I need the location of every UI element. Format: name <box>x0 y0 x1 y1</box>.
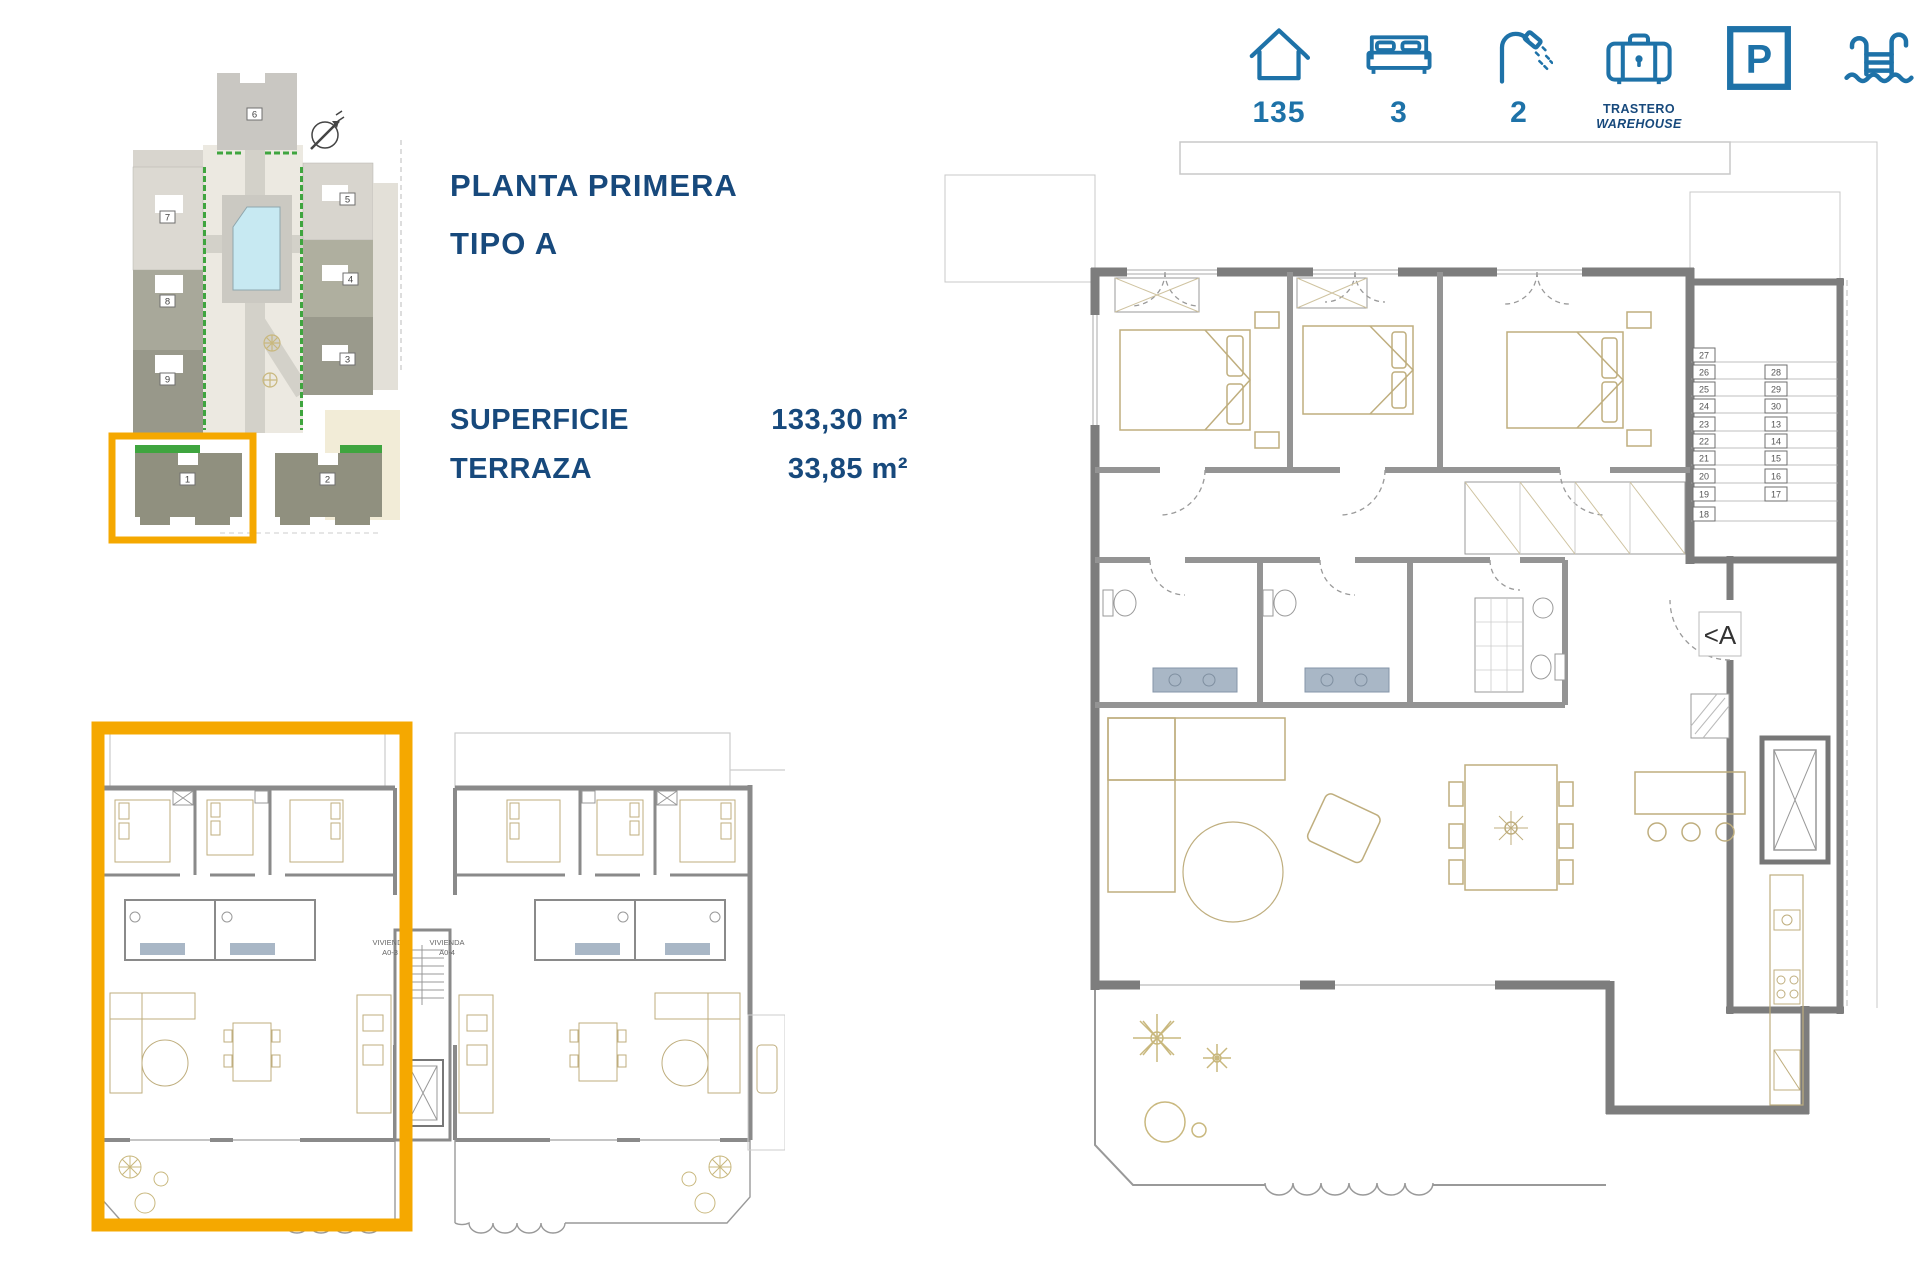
storage-number: 26 <box>1699 368 1709 378</box>
floor-plan-sheet: { "title": { "line1": "PLANTA PRIMERA", … <box>0 0 1920 1280</box>
storage-number: 17 <box>1771 490 1781 500</box>
building-number: 5 <box>345 195 350 206</box>
bathrooms-summary: 2 <box>1476 22 1562 130</box>
parking-summary: P <box>1716 22 1802 94</box>
terrace-plants <box>1133 1014 1231 1142</box>
building-column-west: 7 8 9 <box>133 167 203 433</box>
building-1: 1 <box>135 445 242 525</box>
parking-glyph: P <box>1746 37 1772 81</box>
apartment-unit <box>100 785 395 1233</box>
storage-label: TRASTERO WAREHOUSE <box>1596 102 1682 132</box>
unit-a4-name: VIVIENDA <box>429 938 464 947</box>
spec-row-terraza: TERRAZA 33,85 m² <box>450 453 908 486</box>
parking-icon: P <box>1723 22 1795 94</box>
storage-number: 24 <box>1699 402 1709 412</box>
storage-number: 30 <box>1771 402 1781 412</box>
living-furniture <box>110 993 391 1113</box>
storage-number: 28 <box>1771 368 1781 378</box>
superficie-label: SUPERFICIE <box>450 404 629 437</box>
storage-number: 14 <box>1771 437 1781 447</box>
building-6: 6 <box>217 73 297 150</box>
building-number: 4 <box>348 275 353 286</box>
beds <box>115 800 343 862</box>
building-number: 3 <box>345 355 350 366</box>
storage-number: 21 <box>1699 454 1709 464</box>
storage-number: 13 <box>1771 420 1781 430</box>
page-subtitle: TIPO A <box>450 226 738 262</box>
terraza-label: TERRAZA <box>450 453 592 486</box>
living-furniture <box>1108 718 1382 922</box>
dining-furniture <box>1449 765 1573 890</box>
bathrooms-value: 2 <box>1510 96 1528 130</box>
bathroom-fixtures <box>1103 590 1565 692</box>
storage-boxes: 27 26 25 24 23 22 21 20 19 18 28 29 30 1… <box>1693 348 1787 521</box>
pool-icon <box>1841 22 1917 94</box>
entrance-label: <A <box>1699 612 1741 656</box>
page-title: PLANTA PRIMERA <box>450 168 738 204</box>
storage-number: 15 <box>1771 454 1781 464</box>
unit-a3-code: A0-3 <box>382 948 398 957</box>
bedrooms-summary: 3 <box>1356 22 1442 130</box>
overview-floor-plan: VIVIENDA A0-3 VIVIENDA A0-4 <box>85 715 785 1240</box>
storage-number: 22 <box>1699 437 1709 447</box>
area-summary: 135 <box>1236 22 1322 130</box>
terrace-plants <box>119 1156 168 1213</box>
warehouse-icon <box>1599 22 1679 94</box>
roof-outline <box>110 733 785 788</box>
storage-number: 25 <box>1699 385 1709 395</box>
bed-icon <box>1359 22 1439 90</box>
building-number: 6 <box>252 110 257 121</box>
storage-number: 23 <box>1699 420 1709 430</box>
pool-summary <box>1836 22 1920 94</box>
sun-lounger <box>748 1015 785 1150</box>
bedrooms-value: 3 <box>1390 96 1408 130</box>
storage-wing: 27 26 25 24 23 22 21 20 19 18 28 29 30 1… <box>1691 348 1838 521</box>
shower-icon <box>1485 22 1553 90</box>
terrace <box>1095 990 1606 1195</box>
storage-number: 18 <box>1699 510 1709 520</box>
unit-a4-code: A0-4 <box>439 948 455 957</box>
building-number: 1 <box>185 475 190 486</box>
storage-number: 27 <box>1699 351 1709 361</box>
area-value: 135 <box>1252 96 1305 130</box>
building-number: 7 <box>165 213 170 224</box>
bedroom-furniture <box>1120 312 1651 448</box>
storage-number: 19 <box>1699 490 1709 500</box>
detail-floor-plan: 27 26 25 24 23 22 21 20 19 18 28 29 30 1… <box>865 130 1885 1205</box>
building-number: 9 <box>165 375 170 386</box>
spec-row-superficie: SUPERFICIE 133,30 m² <box>450 404 908 437</box>
compass-icon <box>311 111 344 149</box>
storage-label-es: TRASTERO <box>1596 102 1682 117</box>
house-icon <box>1243 22 1315 90</box>
storage-number: 20 <box>1699 472 1709 482</box>
plan-title: PLANTA PRIMERA TIPO A <box>450 168 738 262</box>
storage-summary: TRASTERO WAREHOUSE <box>1596 22 1682 132</box>
building-number: 2 <box>325 475 330 486</box>
surface-specs: SUPERFICIE 133,30 m² TERRAZA 33,85 m² <box>450 404 908 502</box>
building-number: 8 <box>165 297 170 308</box>
site-plan-thumbnail: 6 7 8 9 5 4 3 <box>100 55 430 560</box>
summary-icon-row: 135 3 2 <box>1236 22 1920 132</box>
storage-number: 29 <box>1771 385 1781 395</box>
pool <box>222 195 292 303</box>
apartment-unit-mirrored <box>455 785 750 1233</box>
building-2: 2 <box>275 445 382 525</box>
stair-core <box>1691 694 1828 862</box>
entrance-label-text: <A <box>1704 620 1737 650</box>
storage-number: 16 <box>1771 472 1781 482</box>
